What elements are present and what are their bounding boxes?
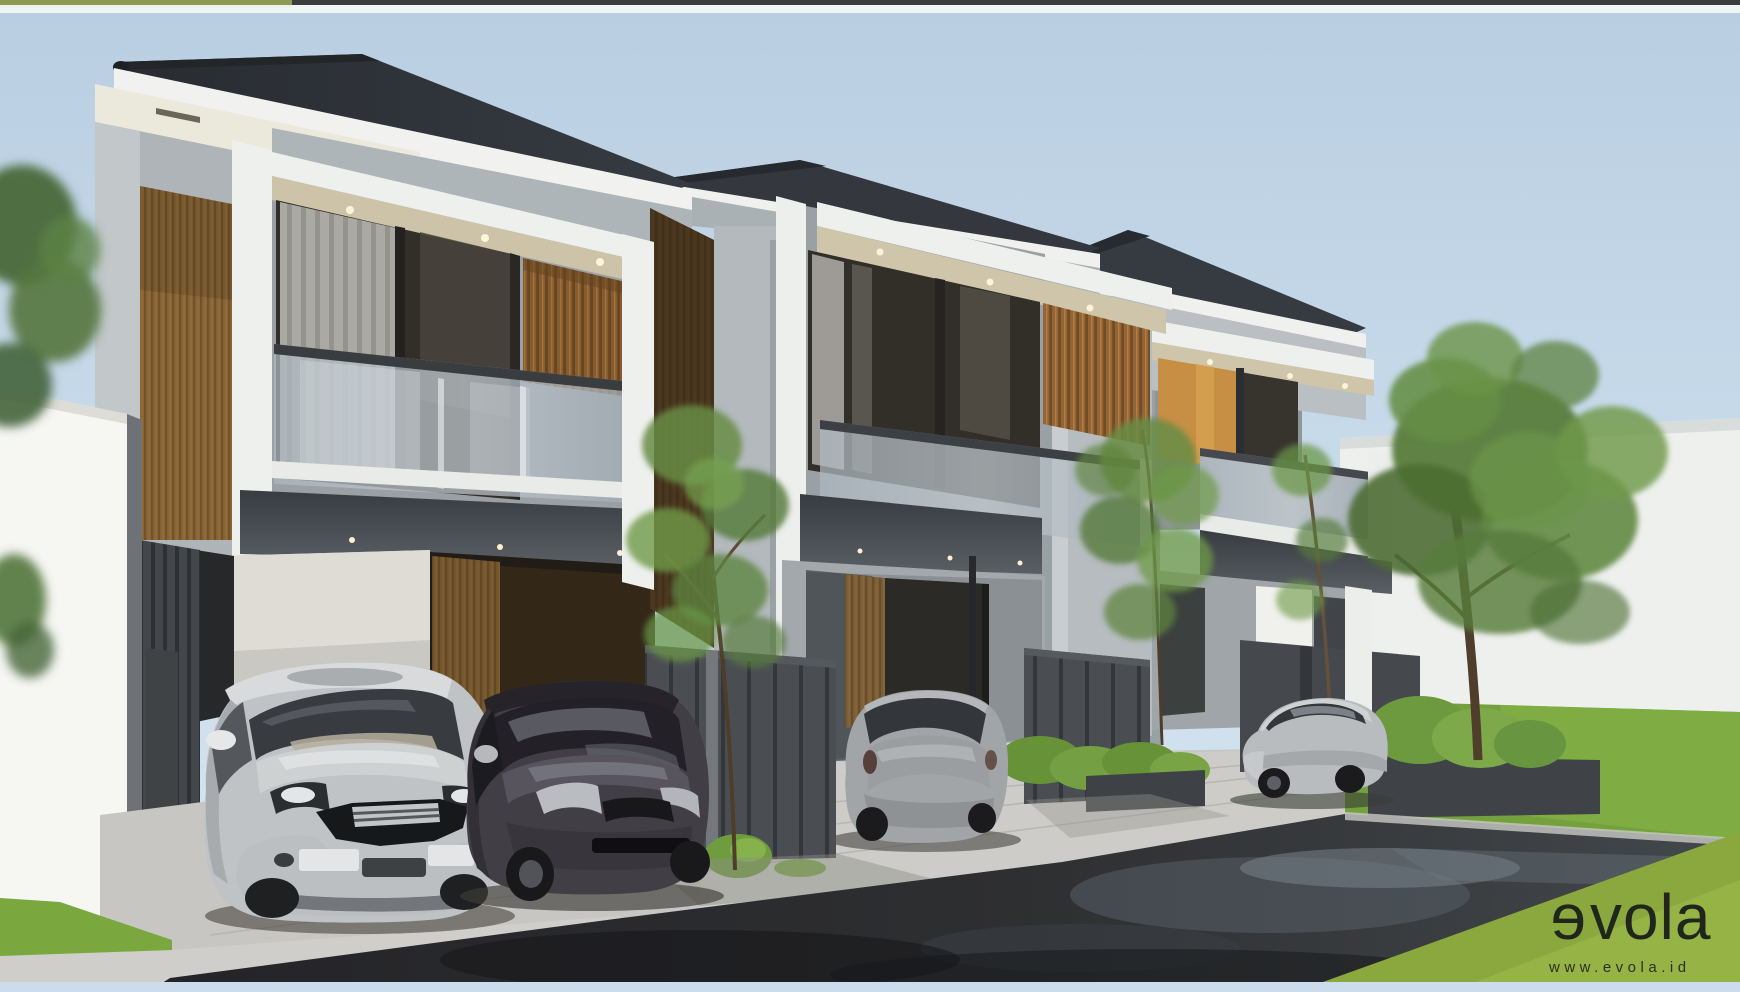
svg-text:e: e xyxy=(1549,881,1586,953)
svg-text:vola: vola xyxy=(1590,881,1711,953)
svg-text:www.evola.id: www.evola.id xyxy=(1548,959,1691,976)
